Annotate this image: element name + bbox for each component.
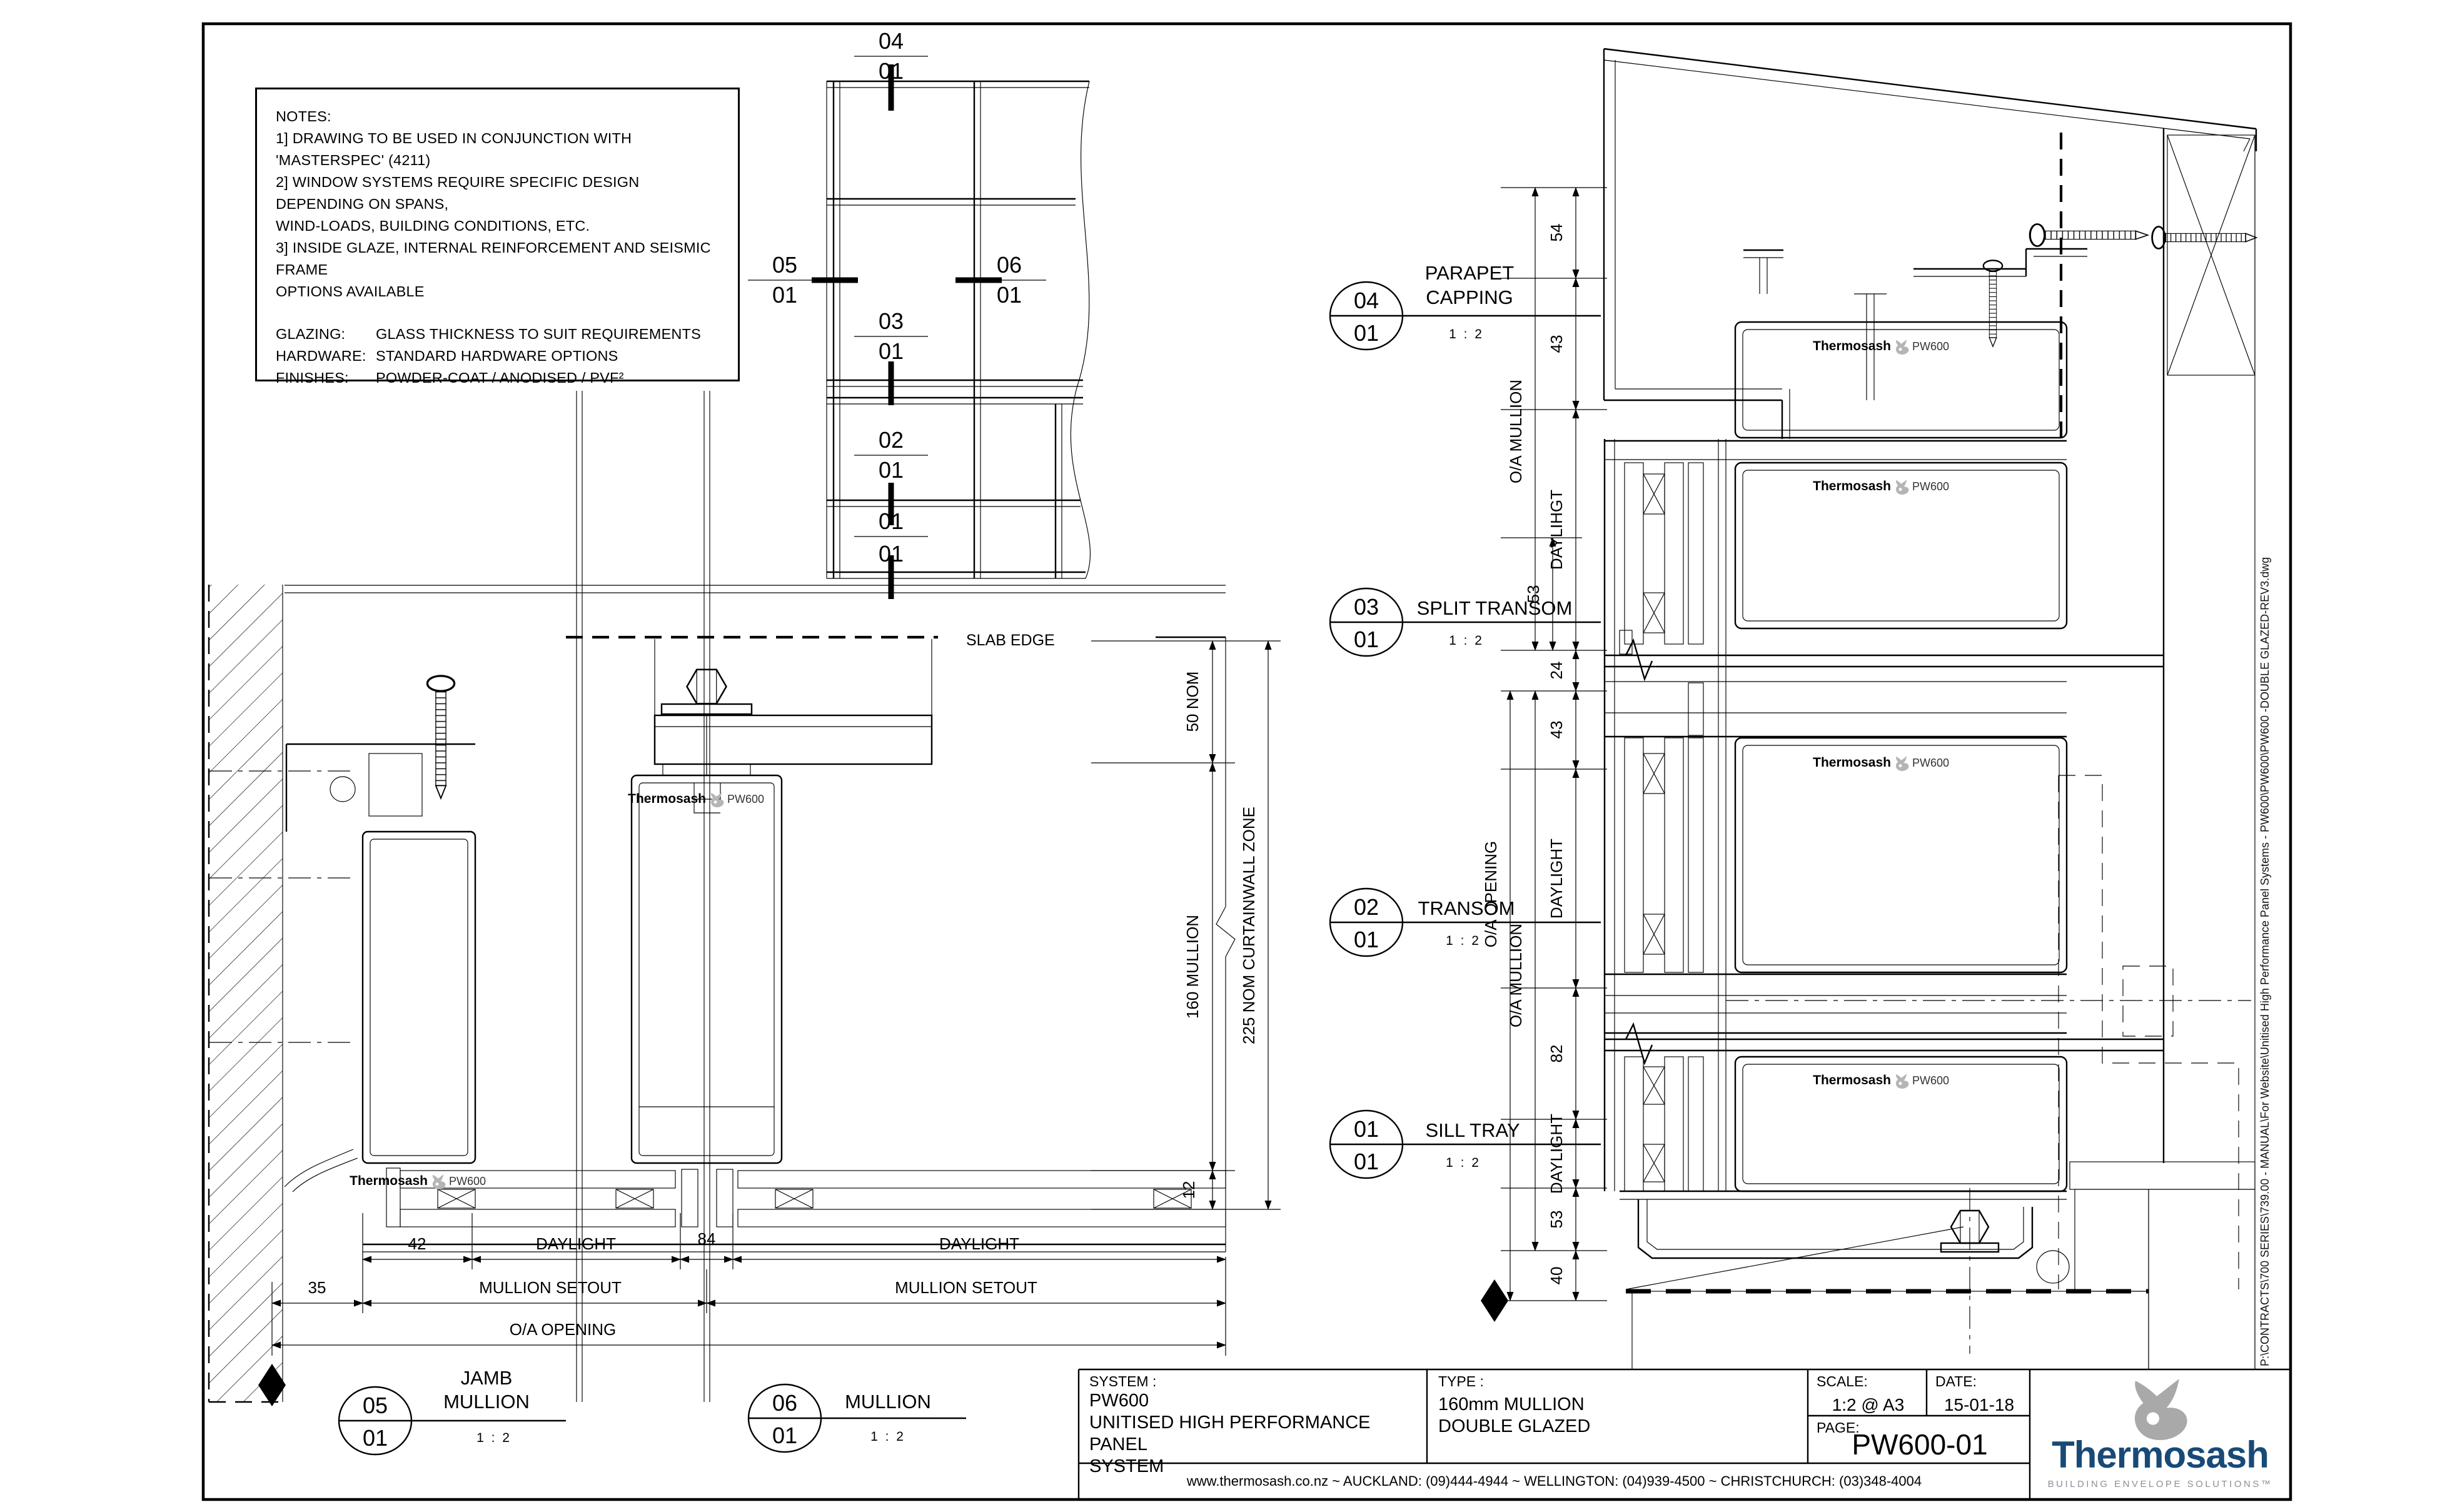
- scale-value: 1:2 @ A3: [1817, 1395, 1920, 1415]
- thermosash-bird-icon: [1896, 480, 1909, 495]
- system-line2: UNITISED HIGH PERFORMANCE PANEL: [1089, 1412, 1421, 1456]
- bubble-title: SPLIT TRANSOM: [1417, 597, 1573, 619]
- dim-84: 84: [698, 1229, 716, 1248]
- glass-pane: [1625, 738, 1643, 972]
- notes-heading: NOTES:: [276, 106, 719, 128]
- bubble-title: TRANSOM: [1418, 897, 1515, 919]
- notes-glazing-row: GLAZING: GLASS THICKNESS TO SUIT REQUIRE…: [276, 323, 719, 345]
- dim-daylight-typo: DAYLIHGT: [1547, 490, 1566, 570]
- split-transom-joint: [1605, 640, 2164, 737]
- type-line1: 160mm MULLION: [1438, 1394, 1788, 1416]
- notes-finishes-row: FINISHES: POWDER-COAT / ANODISED / PVF²: [276, 367, 719, 389]
- wall-hatch: [209, 585, 283, 1402]
- plan-view: SLAB EDGE: [209, 391, 1281, 1454]
- finishes-label: FINISHES:: [276, 367, 376, 389]
- brand-name: Thermosash: [350, 1174, 428, 1188]
- dim-oa-mullion-upper: O/A MULLION: [1506, 380, 1525, 483]
- keyref-06-sheet: 01: [997, 282, 1022, 308]
- unit-panel: [1735, 1057, 2067, 1191]
- brand-name: Thermosash: [1813, 339, 1891, 353]
- notes-line: WIND-LOADS, BUILDING CONDITIONS, ETC.: [276, 215, 719, 237]
- keyref-04-num: 04: [879, 28, 904, 54]
- hardware-label: HARDWARE:: [276, 345, 376, 367]
- bubble-scale: 1 : 2: [870, 1429, 905, 1444]
- notes-hardware-row: HARDWARE: STANDARD HARDWARE OPTIONS: [276, 345, 719, 367]
- slab-edge: SLAB EDGE: [566, 632, 1226, 649]
- titleblock-page-cell: PAGE: PW600-01: [1817, 1419, 2023, 1461]
- glazing-row: [1625, 1057, 1703, 1191]
- keyref-02-num: 02: [879, 427, 904, 453]
- titleblock-date-cell: DATE: 15-01-18: [1935, 1373, 2023, 1415]
- dim-oa-opening: O/A OPENING: [510, 1320, 617, 1339]
- bubble-title: MULLION: [443, 1391, 530, 1413]
- screw-icon: [1984, 260, 2002, 346]
- glazing-label: GLAZING:: [276, 323, 376, 345]
- bubble-scale: 1 : 2: [1449, 327, 1484, 341]
- glass-pane: [400, 1209, 675, 1227]
- bubble-num: 04: [1354, 288, 1379, 313]
- keyref-05: 05 01: [748, 252, 822, 308]
- dim-daylight-right: DAYLIGHT: [939, 1234, 1019, 1253]
- keyref-03-num: 03: [879, 308, 904, 334]
- dim-42: 42: [408, 1234, 426, 1253]
- bubble-scale: 1 : 2: [1446, 934, 1481, 948]
- gasket-strip: [1688, 463, 1703, 644]
- glass-spacer: [438, 1189, 1191, 1208]
- brand-name: Thermosash: [1813, 755, 1891, 770]
- section-dimensions: 54 43 DAYLIHGT 53 24 43 DAYLIGHT 82 DAYL…: [1481, 188, 1607, 1322]
- dim-oa-opening-section: O/A OPENING: [1481, 841, 1500, 948]
- glass-pane: [1665, 738, 1683, 972]
- gasket-strip: [1688, 1057, 1703, 1191]
- unit-panel: [1735, 322, 2067, 438]
- bubble-scale: 1 : 2: [1449, 633, 1484, 648]
- thermosash-bird-icon: [711, 792, 724, 807]
- detail-bubble-mullion: 06 01 MULLION 1 : 2: [749, 1384, 966, 1452]
- dim-50-nom: 50 NOM: [1183, 672, 1202, 732]
- notes-line: 2] WINDOW SYSTEMS REQUIRE SPECIFIC DESIG…: [276, 171, 719, 215]
- thermosash-bird-icon: [1896, 340, 1909, 355]
- file-path-text: P:\CONTRACTS\700 SERIES\739.00 - MANUAL\…: [2259, 547, 2272, 1366]
- dim-53-low: 53: [1547, 1211, 1566, 1229]
- joint-seal: [717, 1169, 733, 1227]
- hex-bolt-icon: [687, 670, 727, 704]
- glass-pane: [1625, 1057, 1643, 1191]
- glass-pane: [1625, 463, 1643, 644]
- dim-daylight-low: DAYLIGHT: [1547, 1114, 1566, 1194]
- brand-label: Thermosash PW600: [1813, 1073, 1949, 1089]
- notes-line: OPTIONS AVAILABLE: [276, 281, 719, 303]
- keyref-02: 02 01: [854, 427, 928, 483]
- glazing-row: [1625, 738, 1703, 972]
- brand-name: Thermosash: [628, 792, 706, 806]
- scale-label: SCALE:: [1817, 1373, 1920, 1390]
- bubble-scale: 1 : 2: [1446, 1156, 1481, 1170]
- glass-pane: [738, 1209, 1226, 1227]
- glazing-value: GLASS THICKNESS TO SUIT REQUIREMENTS: [376, 323, 701, 345]
- bubble-title: SILL TRAY: [1425, 1119, 1520, 1141]
- titleblock-type-cell: TYPE : 160mm MULLION DOUBLE GLAZED: [1438, 1373, 1788, 1438]
- dim-daylight-left: DAYLIGHT: [536, 1234, 616, 1253]
- dim-225-zone: 225 NOM CURTAINWALL ZONE: [1239, 807, 1258, 1044]
- notes-line: 1] DRAWING TO BE USED IN CONJUNCTION WIT…: [276, 128, 719, 171]
- drawing-sheet: 04 01 05 01 06 01 03 01 02 01 01 01: [0, 0, 2450, 1512]
- notes-line: 3] INSIDE GLAZE, INTERNAL REINFORCEMENT …: [276, 237, 719, 281]
- dim-12: 12: [1179, 1181, 1198, 1199]
- slab-hatch: [1632, 1291, 2149, 1369]
- grout-stipple: [2075, 1189, 2149, 1291]
- bubble-sheet: 01: [1354, 320, 1379, 346]
- dim-mullion-setout-left: MULLION SETOUT: [479, 1278, 622, 1297]
- dim-40: 40: [1547, 1267, 1566, 1285]
- detail-bubble-jamb-mullion: 05 01 JAMB MULLION 1 : 2: [339, 1367, 566, 1454]
- brand-mini-labels: Thermosash PW600 Thermosash PW600 Thermo…: [350, 339, 1949, 1189]
- dim-24: 24: [1547, 662, 1566, 680]
- brand-name: Thermosash: [1813, 1073, 1891, 1087]
- joint-seal: [682, 1169, 698, 1227]
- brand-product: PW600: [1912, 340, 1949, 353]
- brand-label: Thermosash PW600: [628, 792, 764, 807]
- keyref-04: 04 01: [854, 28, 928, 84]
- bubble-num: 05: [363, 1393, 388, 1418]
- glass-pane: [738, 1171, 1226, 1188]
- keyref-01: 01 01: [854, 508, 928, 567]
- bubble-sheet: 01: [363, 1425, 388, 1451]
- footer-contacts: www.thermosash.co.nz ~ AUCKLAND: (09)444…: [1187, 1473, 1922, 1489]
- mullion-profile: [632, 764, 782, 1163]
- screw-icon: [2030, 224, 2148, 246]
- bubble-title: PARAPET: [1425, 262, 1514, 284]
- dim-mullion-setout-right: MULLION SETOUT: [895, 1278, 1037, 1297]
- thermosash-bird-icon: [1896, 756, 1909, 771]
- notes-box: NOTES: 1] DRAWING TO BE USED IN CONJUNCT…: [255, 88, 740, 381]
- bubble-num: 06: [772, 1390, 797, 1416]
- jamb-mullion-profile: [285, 676, 475, 1192]
- date-label: DATE:: [1935, 1373, 2023, 1390]
- brand-name: Thermosash: [1813, 479, 1891, 493]
- brand-label: Thermosash PW600: [1813, 339, 1949, 355]
- glass-pane: [1665, 1057, 1683, 1191]
- finishes-value: POWDER-COAT / ANODISED / PVF²: [376, 367, 624, 389]
- bubble-num: 03: [1354, 594, 1379, 620]
- brand-product: PW600: [1912, 1074, 1949, 1087]
- glazing-row: [1620, 463, 1703, 654]
- membrane-line: [285, 1149, 353, 1187]
- brand-label: Thermosash PW600: [1813, 479, 1949, 495]
- fixing-bracket: [1913, 128, 2256, 1369]
- dim-43-top: 43: [1547, 335, 1566, 353]
- key-plan: 04 01 05 01 06 01 03 01 02 01 01 01: [748, 28, 1091, 599]
- brand-product: PW600: [1912, 757, 1949, 769]
- unit-panel: [1735, 738, 2067, 972]
- section-view: 54 43 DAYLIHGT 53 24 43 DAYLIGHT 82 DAYL…: [1330, 49, 2256, 1369]
- bubble-scale: 1 : 2: [476, 1431, 512, 1445]
- bubble-sheet: 01: [1354, 927, 1379, 952]
- keyref-03: 03 01: [854, 308, 928, 364]
- dim-160-mullion: 160 MULLION: [1183, 915, 1202, 1019]
- bubble-num: 02: [1354, 894, 1379, 920]
- keyref-02-sheet: 01: [879, 457, 904, 483]
- titleblock-scale-cell: SCALE: 1:2 @ A3: [1817, 1373, 1920, 1415]
- thermosash-bird-icon: [433, 1174, 446, 1189]
- dim-daylight-mid: DAYLIGHT: [1547, 839, 1566, 919]
- break-wave: [1071, 81, 1090, 578]
- brand-product: PW600: [449, 1175, 486, 1187]
- dim-54: 54: [1547, 224, 1566, 242]
- shim-hatch: [2070, 1162, 2255, 1189]
- dim-35: 35: [308, 1278, 326, 1297]
- transom-joint: [1605, 775, 2251, 1289]
- frame-break-line: [1216, 637, 1235, 1252]
- bubble-title: JAMB: [461, 1367, 513, 1389]
- hardware-value: STANDARD HARDWARE OPTIONS: [376, 345, 618, 367]
- ground-structure: [1632, 1162, 2255, 1369]
- thermosash-bird-icon: [1896, 1074, 1909, 1089]
- keyref-05-sheet: 01: [772, 282, 797, 308]
- plan-dimensions: 42 DAYLIGHT 84 DAYLIGHT 35 MULLION SETOU…: [258, 1213, 1226, 1406]
- screw-icon: [2152, 226, 2257, 248]
- datum-diamond-icon: [1481, 1279, 1508, 1322]
- screw-icon: [427, 676, 454, 799]
- brand-label: Thermosash PW600: [350, 1174, 486, 1189]
- system-line1: PW600: [1089, 1390, 1421, 1412]
- parapet-capping-profile: [1604, 49, 2256, 439]
- bubble-sheet: 01: [772, 1423, 797, 1448]
- logo-wordmark: Thermosash: [2030, 1433, 2291, 1476]
- packer-hatch: [369, 753, 422, 816]
- keyref-01-num: 01: [879, 508, 904, 534]
- system-label: SYSTEM :: [1089, 1373, 1421, 1390]
- keyref-03-sheet: 01: [879, 338, 904, 364]
- keyref-04-sheet: 01: [879, 58, 904, 84]
- logo-tagline: BUILDING ENVELOPE SOLUTIONS™: [2030, 1479, 2291, 1489]
- brand-product: PW600: [1912, 480, 1949, 493]
- bubble-title: MULLION: [845, 1391, 931, 1413]
- dim-82: 82: [1547, 1045, 1566, 1063]
- sill-tray: [1620, 1188, 2149, 1354]
- dim-oa-mullion-lower: O/A MULLION: [1506, 924, 1525, 1027]
- bubble-title: CAPPING: [1426, 286, 1513, 308]
- slab-edge-label: SLAB EDGE: [966, 632, 1055, 649]
- titleblock-system-cell: SYSTEM : PW600 UNITISED HIGH PERFORMANCE…: [1089, 1373, 1421, 1478]
- dim-43-mid: 43: [1547, 721, 1566, 739]
- bubble-sheet: 01: [1354, 1149, 1379, 1174]
- anchor-assembly: [655, 639, 932, 775]
- keyref-06-num: 06: [997, 252, 1022, 278]
- keyref-05-num: 05: [772, 252, 797, 278]
- detail-bubble-split-transom: 03 01 SPLIT TRANSOM 1 : 2: [1330, 588, 1601, 656]
- type-label: TYPE :: [1438, 1373, 1788, 1390]
- keyref-01-sheet: 01: [879, 541, 904, 567]
- seal-gasket: [2037, 1251, 2069, 1283]
- plan-glazing: [363, 1168, 1226, 1252]
- brand-label: Thermosash PW600: [1813, 755, 1949, 771]
- bubble-num: 01: [1354, 1116, 1379, 1142]
- date-value: 15-01-18: [1935, 1395, 2023, 1415]
- ghost-bolt: [2123, 966, 2173, 1036]
- gasket-icon: [330, 777, 355, 802]
- gasket-strip: [1688, 738, 1703, 972]
- keyref-06: 06 01: [972, 252, 1046, 308]
- bubble-sheet: 01: [1354, 627, 1379, 652]
- glass-pane: [1665, 463, 1683, 644]
- logo-cell: Thermosash BUILDING ENVELOPE SOLUTIONS™: [2030, 1369, 2291, 1499]
- plan-dimensions-right: 50 NOM 160 MULLION 12 225 NOM CURTAINWAL…: [1091, 641, 1281, 1209]
- titleblock-footer: www.thermosash.co.nz ~ AUCKLAND: (09)444…: [1079, 1463, 2030, 1499]
- type-line2: DOUBLE GLAZED: [1438, 1416, 1788, 1438]
- brand-product: PW600: [727, 793, 764, 805]
